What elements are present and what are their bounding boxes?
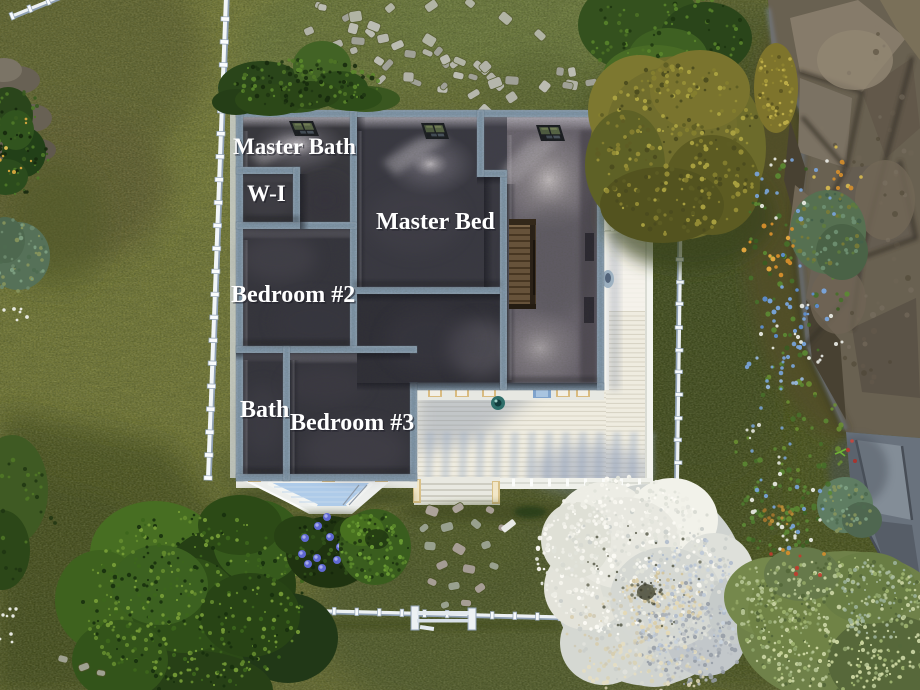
- svg-text:Bedroom #2: Bedroom #2: [231, 282, 355, 308]
- svg-text:Bath: Bath: [240, 397, 289, 423]
- svg-text:Master Bed: Master Bed: [376, 209, 496, 235]
- svg-text:Master Bath: Master Bath: [233, 134, 356, 159]
- svg-text:W-I: W-I: [247, 181, 286, 206]
- svg-text:Bedroom #3: Bedroom #3: [290, 410, 414, 436]
